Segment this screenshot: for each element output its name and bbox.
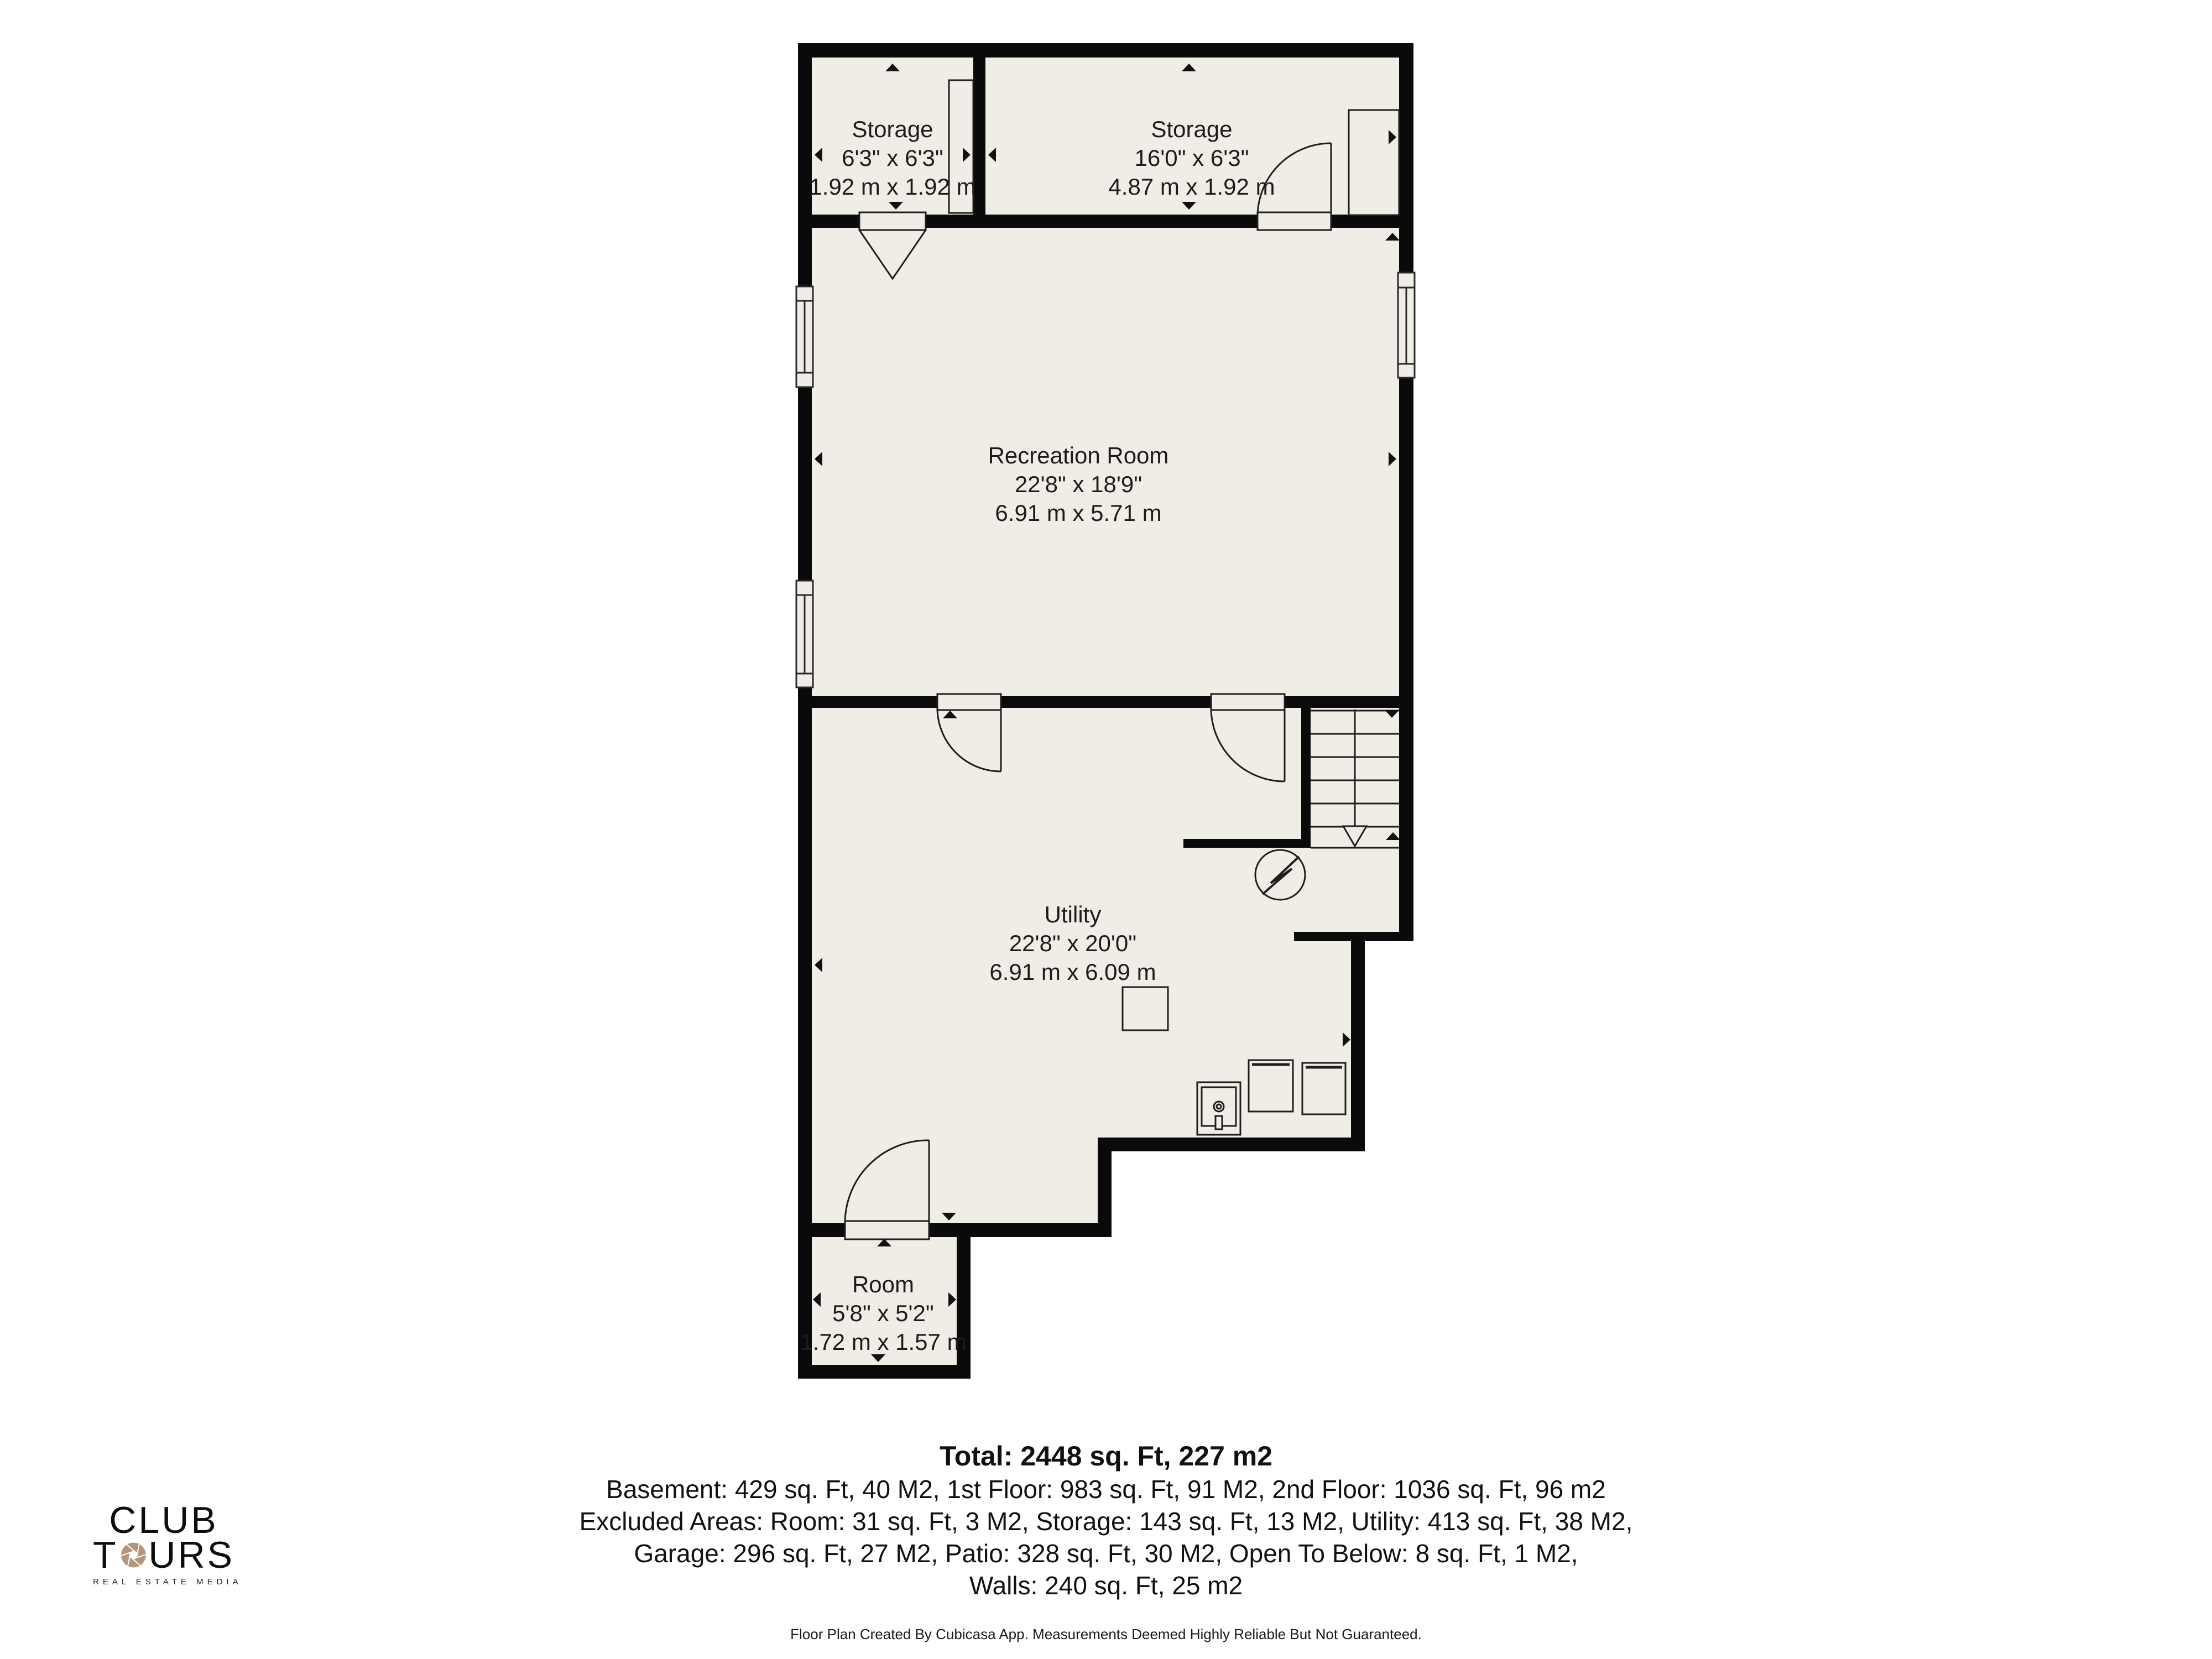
doorway-recreation-closet bbox=[1211, 694, 1285, 710]
logo-tours-urs: URS bbox=[148, 1537, 234, 1573]
fixture-square-icon bbox=[1123, 987, 1168, 1030]
window-left-upper-icon bbox=[796, 286, 813, 387]
summary-floors: Basement: 429 sq. Ft, 40 M2, 1st Floor: … bbox=[0, 1473, 2212, 1505]
doorway-recreation-utility bbox=[937, 694, 1001, 710]
room-name: Utility bbox=[1045, 901, 1102, 927]
doorway-storage-left bbox=[859, 212, 926, 230]
room-label-recreation: Recreation Room 22'8" x 18'9" 6.91 m x 5… bbox=[988, 442, 1169, 526]
dryer-icon bbox=[1302, 1063, 1345, 1114]
wall-closet-bottom bbox=[1183, 839, 1311, 848]
room-dim-metric: 6.91 m x 6.09 m bbox=[989, 959, 1156, 985]
room-name: Storage bbox=[852, 116, 933, 142]
doorway-utility-room bbox=[845, 1221, 929, 1239]
room-name: Storage bbox=[1151, 116, 1232, 142]
furnace-icon bbox=[1255, 850, 1305, 900]
closet-shelf-icon bbox=[1349, 110, 1399, 215]
sink-icon bbox=[1197, 1082, 1240, 1135]
window-right-icon bbox=[1398, 273, 1415, 378]
floor-plan: Storage 6'3" x 6'3" 1.92 m x 1.92 m Stor… bbox=[0, 0, 2212, 1659]
wall-under-stairs bbox=[1294, 932, 1413, 941]
window-left-lower-icon bbox=[796, 581, 813, 687]
summary-excluded: Excluded Areas: Room: 31 sq. Ft, 3 M2, S… bbox=[0, 1505, 2212, 1537]
room-dim-imperial: 16'0" x 6'3" bbox=[1135, 145, 1249, 171]
room-dim-metric: 1.92 m x 1.92 m bbox=[809, 174, 975, 200]
club-tours-logo: CLUB T URS REAL ESTATE MEDIA bbox=[93, 1503, 234, 1587]
washer-icon bbox=[1249, 1060, 1293, 1112]
wall-closet-vertical bbox=[1301, 696, 1311, 848]
summary-walls: Walls: 240 sq. Ft, 25 m2 bbox=[0, 1569, 2212, 1601]
logo-tours-t: T bbox=[93, 1537, 118, 1573]
room-dim-metric: 6.91 m x 5.71 m bbox=[995, 500, 1161, 526]
room-name: Room bbox=[852, 1271, 914, 1297]
room-dim-imperial: 22'8" x 18'9" bbox=[1015, 471, 1142, 497]
logo-club-text: CLUB bbox=[93, 1503, 234, 1537]
room-name: Recreation Room bbox=[988, 442, 1169, 468]
room-dim-metric: 1.72 m x 1.57 m bbox=[800, 1329, 966, 1355]
wall-recreation-utility bbox=[798, 696, 1413, 708]
room-dim-imperial: 6'3" x 6'3" bbox=[842, 145, 943, 171]
aperture-icon bbox=[119, 1540, 148, 1570]
room-dim-metric: 4.87 m x 1.92 m bbox=[1108, 174, 1275, 200]
summary-garage-patio: Garage: 296 sq. Ft, 27 M2, Patio: 328 sq… bbox=[0, 1537, 2212, 1569]
room-dim-imperial: 22'8" x 20'0" bbox=[1009, 930, 1136, 956]
area-summary: Total: 2448 sq. Ft, 227 m2 Basement: 429… bbox=[0, 1439, 2212, 1601]
doorway-storage-right bbox=[1258, 212, 1331, 230]
logo-tagline: REAL ESTATE MEDIA bbox=[93, 1577, 234, 1587]
disclaimer-text: Floor Plan Created By Cubicasa App. Meas… bbox=[0, 1626, 2212, 1643]
logo-tours-text: T URS bbox=[93, 1537, 234, 1573]
room-dim-imperial: 5'8" x 5'2" bbox=[832, 1300, 934, 1326]
summary-total: Total: 2448 sq. Ft, 227 m2 bbox=[0, 1439, 2212, 1473]
